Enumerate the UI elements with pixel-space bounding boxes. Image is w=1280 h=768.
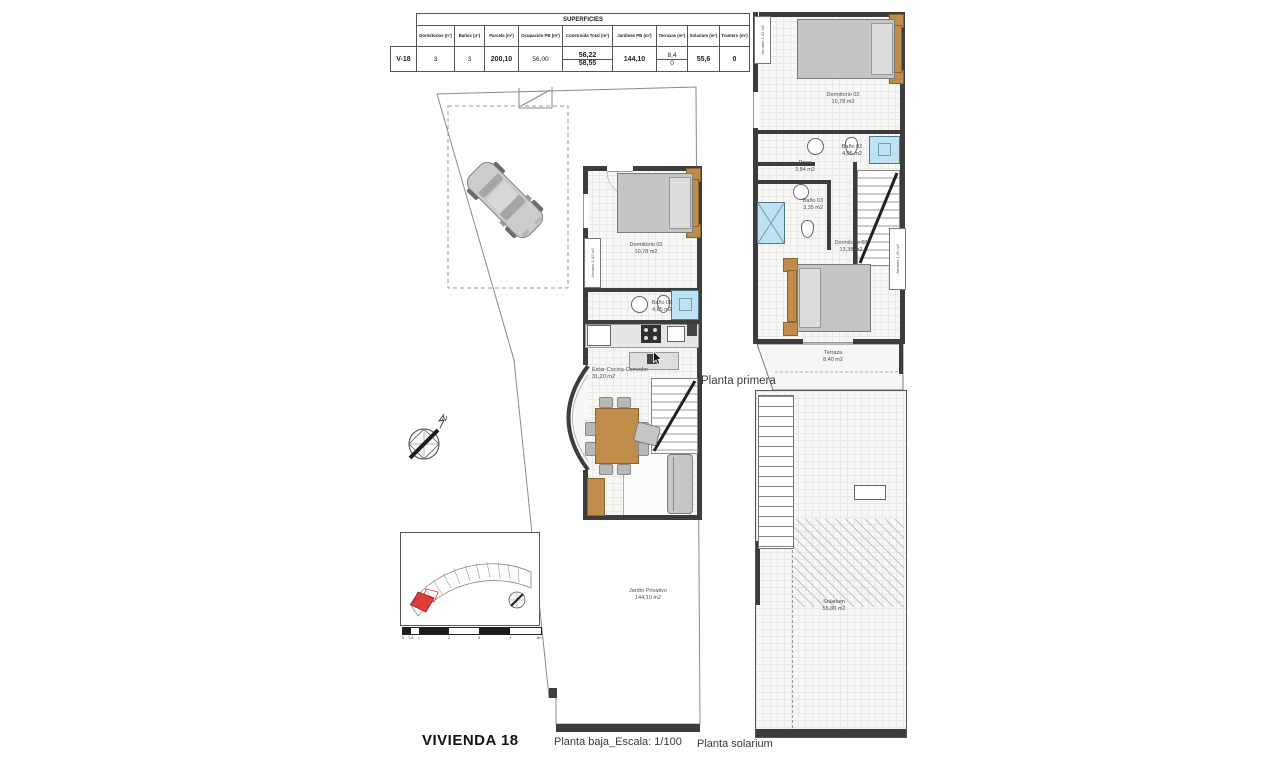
room-label-bano-gf: Baño 02 4,05 m2 — [640, 300, 684, 315]
room-label-paso: Paso 3,84 m2 — [785, 160, 825, 175]
col-banos: Baños (nº) — [455, 26, 485, 47]
room-label-bano2: Baño 02 4,05 m2 — [830, 144, 874, 159]
table-title: SUPERFICIES — [417, 14, 750, 26]
closet-box-e: Armario 1,42 m2 — [889, 228, 906, 290]
ground-floor-plan: Armario 1,42 m2 — [583, 166, 702, 522]
first-floor-caption: Planta primera — [701, 375, 776, 387]
room-label-bano3: Baño 03 3,35 m2 — [791, 198, 835, 213]
val-terrazas: 8,4 0 — [657, 47, 688, 72]
room-label-dormitorio3: Dormitorio 03 13,38 m2 — [820, 240, 882, 255]
fridge — [587, 325, 611, 346]
val-construida: 56,22 58,55 — [563, 47, 613, 72]
col-solarium: Solarium (m²) — [688, 26, 720, 47]
sink-icon — [807, 138, 824, 155]
kitchen-sink-icon — [667, 326, 685, 342]
scale-tick: 0 — [402, 636, 404, 640]
col-ocupacion: Ocupación PB (m²) — [519, 26, 563, 47]
col-terrazas: Terrazas (m²) — [657, 26, 688, 47]
val-banos: 3 — [455, 47, 485, 72]
bed-pillows — [799, 268, 821, 328]
room-label-solarium: Solarium 55,80 m2 — [804, 599, 864, 614]
ground-floor-caption: Planta baja_Escala: 1/100 — [554, 736, 682, 748]
solarium-caption: Planta solarium — [697, 738, 773, 750]
floor-plan-sheet: SUPERFICIES Dormitorios (nº) Baños (nº) … — [0, 0, 1280, 768]
scale-tick: 2 — [448, 636, 450, 640]
col-parcela: Parcela (m²) — [485, 26, 519, 47]
dining-table — [595, 408, 639, 464]
window-opening — [753, 92, 759, 128]
terrace-door-line — [803, 342, 853, 343]
scale-tick: 4 — [509, 636, 511, 640]
row-id: V-18 — [391, 47, 417, 72]
sideboard — [587, 478, 605, 516]
stair-shaft — [758, 395, 794, 549]
val-dormitorios: 3 — [417, 47, 455, 72]
surfaces-table: SUPERFICIES Dormitorios (nº) Baños (nº) … — [390, 13, 750, 72]
bed-pillows — [669, 177, 691, 229]
scale-tick: 3 — [478, 636, 480, 640]
col-jardines: Jardines PB (m²) — [613, 26, 657, 47]
col-dormitorios: Dormitorios (nº) — [417, 26, 455, 47]
shower-03 — [757, 202, 785, 244]
mouse-cursor-icon — [653, 351, 664, 366]
room-label-jardin: Jardín Privativo 144,10 m2 — [612, 588, 684, 603]
compass-rose-icon: N — [398, 406, 452, 474]
garden-south-wall — [556, 724, 700, 732]
scale-tick: 1 — [418, 636, 420, 640]
sofa — [667, 454, 693, 514]
sheet-title: VIVIENDA 18 — [422, 732, 519, 749]
first-floor-plan: Armario 1,42 m2 — [753, 12, 905, 344]
site-location-inset — [400, 532, 540, 626]
val-solarium: 55,6 — [688, 47, 720, 72]
val-ocupacion: 56,00 — [519, 47, 563, 72]
col-trastero: Trastero (m²) — [720, 26, 750, 47]
bay-window-arc — [561, 363, 591, 473]
closet-label: Armario — [590, 264, 595, 278]
car-illustration — [445, 148, 565, 253]
solarium-bench — [854, 485, 886, 500]
scale-tick: 0,5 — [409, 636, 414, 640]
closet-box: Armario 1,42 m2 — [584, 238, 601, 288]
col-construida: Construida Total (m²) — [563, 26, 613, 47]
val-jardines: 144,10 — [613, 47, 657, 72]
scale-tick: 5m — [537, 636, 542, 640]
window-opening — [583, 194, 589, 228]
val-trastero: 0 — [720, 47, 750, 72]
hatched-area — [794, 519, 904, 607]
stove — [641, 325, 661, 343]
staircase — [651, 378, 698, 454]
room-label-estar: Estar-Cocina-Comedor 31,20 m2 — [592, 367, 672, 382]
room-label-terraza: Terraza 8,40 m2 — [808, 350, 858, 365]
north-label: N — [442, 416, 448, 423]
solarium-plan: Solarium 55,80 m2 — [755, 390, 907, 738]
room-label-dormitorio-gf: Dormitorio 02 10,78 m2 — [615, 242, 677, 257]
closet-box-nw: Armario 1,42 m2 — [754, 16, 771, 64]
room-label-dormitorio2: Dormitorio 02 10,78 m2 — [812, 92, 874, 107]
scale-bar: 0 0,5 1 2 3 4 5m — [402, 627, 542, 635]
val-parcela: 200,10 — [485, 47, 519, 72]
bed-headboard — [787, 270, 797, 322]
bed-pillows — [871, 23, 893, 75]
nightstand — [783, 322, 798, 336]
kitchen-column — [687, 324, 697, 336]
